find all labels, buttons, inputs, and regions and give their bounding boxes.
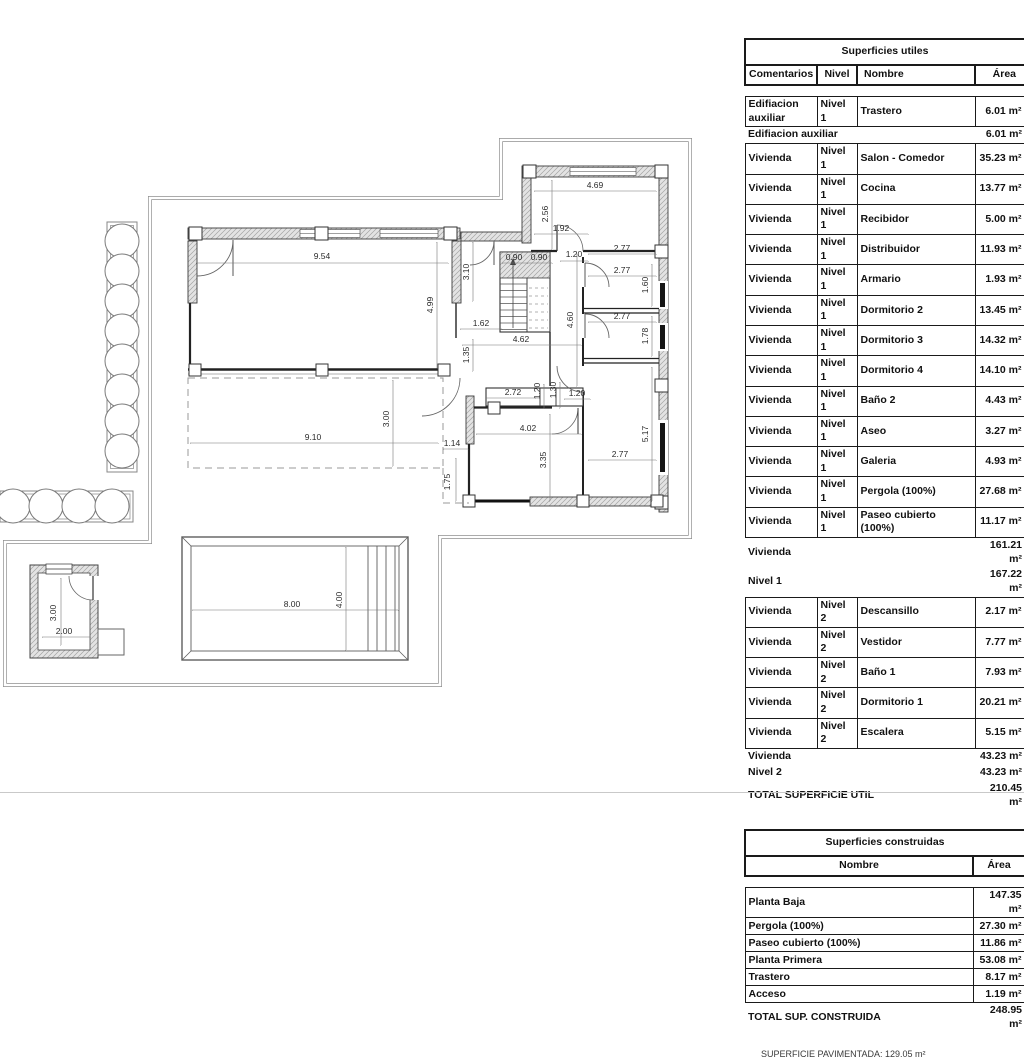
table-cell: Nivel 1	[817, 235, 857, 265]
subtotal-area: 167.22 m²	[975, 567, 1024, 597]
table-row: Edifiacion auxiliarNivel 1Trastero6.01 m…	[745, 97, 1024, 127]
tables-panel: Superficies utilesComentariosNivelNombre…	[744, 38, 1024, 1059]
table-title: Superficies construidas	[745, 830, 1024, 856]
table-cell: Paseo cubierto (100%)	[857, 507, 975, 537]
subtotal-area: 43.23 m²	[975, 765, 1024, 781]
area-cell: 7.93 m²	[975, 658, 1024, 688]
table-row: Acceso1.19 m²	[745, 986, 1024, 1003]
dimension-label: 8.00	[284, 599, 301, 609]
area-cell: 5.00 m²	[975, 204, 1024, 234]
pavimentada-note: SUPERFICIE PAVIMENTADA: 129.05 m²	[761, 1049, 1024, 1059]
area-cell: 8.17 m²	[973, 969, 1024, 986]
dimension-label: 1.35	[461, 346, 471, 363]
dimension-label: 1.92	[553, 223, 570, 233]
table-cell: Nivel 1	[817, 447, 857, 477]
column-header: Comentarios	[745, 65, 817, 85]
table-cell: Vivienda	[745, 356, 817, 386]
dimension-label: 3.35	[538, 451, 548, 468]
table-row: Edifiacion auxiliar6.01 m²	[745, 127, 1024, 144]
surface-table: Superficies construidasNombreÁreaPlanta …	[744, 829, 1024, 1033]
area-cell: 11.17 m²	[975, 507, 1024, 537]
table-superficies-utiles: Superficies utilesComentariosNivelNombre…	[744, 38, 1024, 810]
table-row: ViviendaNivel 1Galeria4.93 m²	[745, 447, 1024, 477]
table-cell: Nivel 2	[817, 597, 857, 627]
dimension-label: 2.77	[612, 449, 629, 459]
table-row: ViviendaNivel 1Pergola (100%)27.68 m²	[745, 477, 1024, 507]
table-cell: Edifiacion auxiliar	[745, 97, 817, 127]
table-row: ViviendaNivel 1Recibidor5.00 m²	[745, 204, 1024, 234]
table-cell: Vivienda	[745, 718, 817, 748]
subtotal-label: Nivel 1	[745, 567, 975, 597]
dimension-label: 4.00	[334, 591, 344, 608]
surface-table: Superficies utilesComentariosNivelNombre…	[744, 38, 1024, 810]
dimension-label: 1.14	[444, 438, 461, 448]
table-cell: Nivel 1	[817, 325, 857, 355]
table-cell: Vivienda	[745, 204, 817, 234]
area-cell: 5.15 m²	[975, 718, 1024, 748]
table-row: Vivienda43.23 m²	[745, 748, 1024, 765]
dimension-label: 4.62	[513, 334, 530, 344]
dimension-label: 3.00	[381, 410, 391, 427]
table-row: ViviendaNivel 1Salon - Comedor35.23 m²	[745, 144, 1024, 174]
table-row: ViviendaNivel 1Paseo cubierto (100%)11.1…	[745, 507, 1024, 537]
dimension-label: 3.10	[461, 263, 471, 280]
subtotal-label: Vivienda	[745, 748, 975, 765]
table-row: Vivienda161.21 m²	[745, 537, 1024, 567]
subtotal-area: 161.21 m²	[975, 537, 1024, 567]
table-cell: Nivel 1	[817, 356, 857, 386]
table-row: Planta Baja147.35 m²	[745, 888, 1024, 918]
area-cell: 7.77 m²	[975, 627, 1024, 657]
table-row: Planta Primera53.08 m²	[745, 952, 1024, 969]
total-area: 210.45 m²	[975, 781, 1024, 810]
dimension-label: 1.20	[569, 388, 586, 398]
table-row: ViviendaNivel 2Baño 17.93 m²	[745, 658, 1024, 688]
dimension-label: 4.69	[587, 180, 604, 190]
table-row: ViviendaNivel 1Distribuidor11.93 m²	[745, 235, 1024, 265]
area-cell: 1.93 m²	[975, 265, 1024, 295]
table-cell: Trastero	[745, 969, 973, 986]
area-cell: 53.08 m²	[973, 952, 1024, 969]
table-cell: Vivienda	[745, 265, 817, 295]
aux-annex	[98, 629, 124, 655]
header-row: ComentariosNivelNombreÁrea	[745, 65, 1024, 85]
dimension-label: 2.77	[614, 311, 631, 321]
dimension-label: 4.60	[565, 311, 575, 328]
table-cell: Pergola (100%)	[745, 918, 973, 935]
table-row: Trastero8.17 m²	[745, 969, 1024, 986]
columns	[189, 165, 668, 509]
table-cell: Nivel 1	[817, 265, 857, 295]
dimension-label: 1.20	[566, 249, 583, 259]
drawing-sheet: 9.544.993.101.621.354.624.600.900.901.20…	[0, 0, 1024, 800]
table-row: Nivel 1167.22 m²	[745, 567, 1024, 597]
table-cell: Nivel 1	[817, 507, 857, 537]
subtotal-label: Edifiacion auxiliar	[745, 127, 975, 144]
spacer-cell	[745, 876, 1024, 888]
dimension-label: 4.99	[425, 296, 435, 313]
subtotal-area: 43.23 m²	[975, 748, 1024, 765]
area-cell: 27.68 m²	[975, 477, 1024, 507]
total-label: TOTAL SUPERFICIE UTIL	[745, 781, 975, 810]
pergola-outline	[188, 378, 469, 503]
table-cell: Vivienda	[745, 386, 817, 416]
table-row: TOTAL SUP. CONSTRUIDA248.95 m²	[745, 1003, 1024, 1033]
floor-plan-drawing: 9.544.993.101.621.354.624.600.900.901.20…	[0, 0, 740, 800]
area-cell: 27.30 m²	[973, 918, 1024, 935]
table-row: ViviendaNivel 2Descansillo2.17 m²	[745, 597, 1024, 627]
area-cell: 14.32 m²	[975, 325, 1024, 355]
table-title: Superficies utiles	[745, 39, 1024, 65]
auxiliary-building	[30, 564, 124, 658]
area-cell: 4.93 m²	[975, 447, 1024, 477]
table-cell: Vivienda	[745, 597, 817, 627]
dimension-label: 0.90	[506, 252, 523, 262]
subtotal-area: 6.01 m²	[975, 127, 1024, 144]
table-cell: Paseo cubierto (100%)	[745, 935, 973, 952]
table-cell: Nivel 1	[817, 144, 857, 174]
table-row: TOTAL SUPERFICIE UTIL210.45 m²	[745, 781, 1024, 810]
column-header: Área	[975, 65, 1024, 85]
table-row: ViviendaNivel 1Dormitorio 414.10 m²	[745, 356, 1024, 386]
table-cell: Vivienda	[745, 295, 817, 325]
table-cell: Vivienda	[745, 447, 817, 477]
table-cell: Galeria	[857, 447, 975, 477]
table-cell: Vivienda	[745, 658, 817, 688]
table-cell: Descansillo	[857, 597, 975, 627]
table-cell: Aseo	[857, 416, 975, 446]
table-cell: Planta Primera	[745, 952, 973, 969]
table-cell: Vestidor	[857, 627, 975, 657]
table-cell: Vivienda	[745, 507, 817, 537]
table-row: Paseo cubierto (100%)11.86 m²	[745, 935, 1024, 952]
dimension-label: 1.75	[442, 473, 452, 490]
table-superficies-construidas: Superficies construidasNombreÁreaPlanta …	[744, 829, 1024, 1033]
dimension-label: 1.78	[640, 327, 650, 344]
area-cell: 13.77 m²	[975, 174, 1024, 204]
area-cell: 147.35 m²	[973, 888, 1024, 918]
table-cell: Vivienda	[745, 325, 817, 355]
dimension-label: 3.00	[48, 604, 58, 621]
table-cell: Nivel 1	[817, 295, 857, 325]
total-area: 248.95 m²	[973, 1003, 1024, 1033]
table-cell: Nivel 1	[817, 416, 857, 446]
table-row: ViviendaNivel 2Dormitorio 120.21 m²	[745, 688, 1024, 718]
table-cell: Vivienda	[745, 477, 817, 507]
table-row: ViviendaNivel 1Dormitorio 314.32 m²	[745, 325, 1024, 355]
area-cell: 6.01 m²	[975, 97, 1024, 127]
table-cell: Planta Baja	[745, 888, 973, 918]
table-cell: Nivel 2	[817, 627, 857, 657]
table-row: ViviendaNivel 2Vestidor7.77 m²	[745, 627, 1024, 657]
table-cell: Vivienda	[745, 416, 817, 446]
table-cell: Nivel 2	[817, 688, 857, 718]
table-row: ViviendaNivel 1Baño 24.43 m²	[745, 386, 1024, 416]
table-cell: Salon - Comedor	[857, 144, 975, 174]
column-header: Área	[973, 856, 1024, 876]
area-cell: 13.45 m²	[975, 295, 1024, 325]
table-row: Pergola (100%)27.30 m²	[745, 918, 1024, 935]
dimension-label: 4.02	[520, 423, 537, 433]
table-cell: Vivienda	[745, 144, 817, 174]
subtotal-label: Vivienda	[745, 537, 975, 567]
dimension-label: 9.54	[314, 251, 331, 261]
table-row: ViviendaNivel 2Escalera5.15 m²	[745, 718, 1024, 748]
total-label: TOTAL SUP. CONSTRUIDA	[745, 1003, 973, 1033]
dimension-label: 2.77	[614, 243, 631, 253]
table-row: Nivel 243.23 m²	[745, 765, 1024, 781]
dimension-label: 2.72	[505, 387, 522, 397]
dimension-label: 2.77	[614, 265, 631, 275]
area-cell: 20.21 m²	[975, 688, 1024, 718]
table-cell: Dormitorio 2	[857, 295, 975, 325]
aux-door-gap	[89, 576, 99, 600]
table-cell: Dormitorio 3	[857, 325, 975, 355]
table-row: ViviendaNivel 1Aseo3.27 m²	[745, 416, 1024, 446]
area-cell: 4.43 m²	[975, 386, 1024, 416]
column-header: Nivel	[817, 65, 857, 85]
staircase	[500, 252, 550, 332]
dimension-label: 5.17	[640, 425, 650, 442]
table-row: ViviendaNivel 1Cocina13.77 m²	[745, 174, 1024, 204]
dimension-label: 0.90	[531, 252, 548, 262]
area-cell: 2.17 m²	[975, 597, 1024, 627]
dimension-label: 2.56	[540, 205, 550, 222]
table-cell: Dormitorio 1	[857, 688, 975, 718]
table-cell: Armario	[857, 265, 975, 295]
table-cell: Vivienda	[745, 688, 817, 718]
table-cell: Nivel 1	[817, 477, 857, 507]
spacer-cell	[745, 85, 1024, 97]
area-cell: 11.86 m²	[973, 935, 1024, 952]
dimension-label: 2.00	[56, 626, 73, 636]
table-cell: Recibidor	[857, 204, 975, 234]
area-cell: 3.27 m²	[975, 416, 1024, 446]
table-cell: Nivel 1	[817, 386, 857, 416]
dimension-label: 1.62	[473, 318, 490, 328]
column-header: Nombre	[745, 856, 973, 876]
table-row: ViviendaNivel 1Dormitorio 213.45 m²	[745, 295, 1024, 325]
table-cell: Nivel 1	[817, 204, 857, 234]
dimension-label: 1.30	[548, 381, 558, 398]
area-cell: 35.23 m²	[975, 144, 1024, 174]
subtotal-label: Nivel 2	[745, 765, 975, 781]
header-row: NombreÁrea	[745, 856, 1024, 876]
table-cell: Acceso	[745, 986, 973, 1003]
table-cell: Vivienda	[745, 174, 817, 204]
dimension-label: 1.60	[640, 276, 650, 293]
table-cell: Cocina	[857, 174, 975, 204]
table-cell: Pergola (100%)	[857, 477, 975, 507]
table-cell: Nivel 2	[817, 718, 857, 748]
table-cell: Baño 1	[857, 658, 975, 688]
table-cell: Vivienda	[745, 235, 817, 265]
dimension-label: 9.10	[305, 432, 322, 442]
sheet-bottom-rule	[0, 792, 1024, 793]
table-cell: Nivel 2	[817, 658, 857, 688]
table-cell: Trastero	[857, 97, 975, 127]
table-cell: Escalera	[857, 718, 975, 748]
table-cell: Vivienda	[745, 627, 817, 657]
table-cell: Dormitorio 4	[857, 356, 975, 386]
area-cell: 1.19 m²	[973, 986, 1024, 1003]
table-cell: Baño 2	[857, 386, 975, 416]
area-cell: 14.10 m²	[975, 356, 1024, 386]
dimension-label: 1.20	[532, 382, 542, 399]
table-cell: Nivel 1	[817, 174, 857, 204]
area-cell: 11.93 m²	[975, 235, 1024, 265]
table-row: ViviendaNivel 1Armario1.93 m²	[745, 265, 1024, 295]
table-cell: Distribuidor	[857, 235, 975, 265]
column-header: Nombre	[857, 65, 975, 85]
table-cell: Nivel 1	[817, 97, 857, 127]
